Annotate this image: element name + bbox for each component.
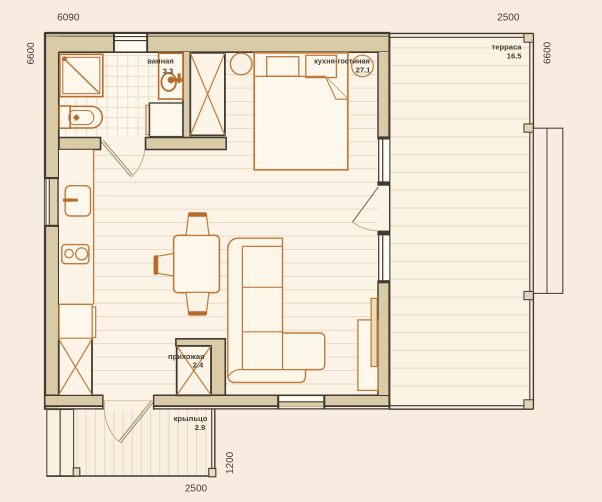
svg-text:2.9: 2.9 [195, 423, 206, 432]
svg-text:3.3: 3.3 [163, 67, 174, 76]
svg-text:крыльцо: крыльцо [174, 414, 208, 423]
svg-text:27.1: 27.1 [356, 65, 372, 74]
svg-text:2500: 2500 [497, 12, 520, 23]
svg-text:1200: 1200 [225, 451, 236, 474]
svg-text:16.5: 16.5 [507, 52, 523, 61]
svg-text:2500: 2500 [185, 483, 208, 494]
svg-text:терраса: терраса [492, 43, 523, 52]
svg-text:ванная: ванная [147, 56, 174, 65]
svg-text:2.4: 2.4 [193, 361, 204, 370]
svg-text:кухня-гостиная: кухня-гостиная [314, 57, 370, 66]
svg-text:6600: 6600 [26, 42, 37, 65]
svg-text:6600: 6600 [543, 41, 554, 64]
svg-text:6090: 6090 [57, 12, 80, 23]
